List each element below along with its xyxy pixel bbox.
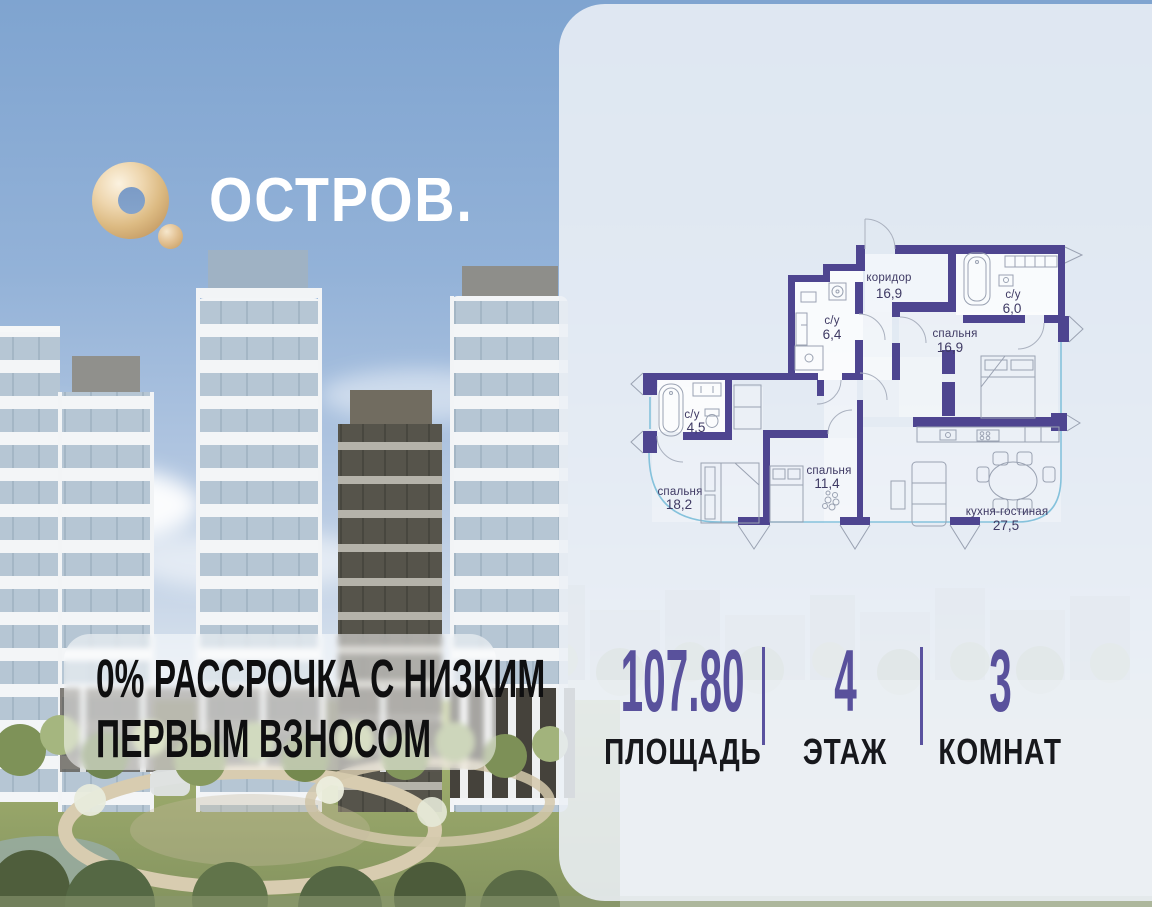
stat-area: 107.80 ПЛОЩАДЬ: [593, 645, 773, 773]
room-area: 6,0: [1003, 301, 1022, 316]
logo-dot-icon: [158, 224, 183, 249]
apartment-stats: 107.80 ПЛОЩАДЬ 4 ЭТАЖ 3 КОМНАТ: [0, 645, 1152, 765]
room-area: 6,4: [823, 327, 842, 342]
stat-floor-value: 4: [834, 645, 857, 717]
room-area: 27,5: [993, 518, 1019, 533]
brand-logo: ОСТРОВ.: [92, 160, 503, 240]
room-label: коридор: [866, 272, 911, 284]
room-area: 16,9: [937, 340, 963, 355]
room-area: 11,4: [814, 476, 840, 491]
stat-rooms-value: 3: [989, 645, 1012, 717]
room-label: с/у: [1005, 289, 1020, 301]
room-area: 4,5: [687, 420, 706, 435]
logo-ring-icon: [92, 162, 169, 239]
brand-name: ОСТРОВ.: [209, 165, 474, 236]
stat-rooms: 3 КОМНАТ: [910, 645, 1090, 773]
stat-area-value: 107.80: [621, 645, 745, 717]
room-area: 16,9: [876, 286, 902, 301]
room-area: 18,2: [666, 497, 692, 512]
stat-rooms-label: КОМНАТ: [938, 731, 1061, 773]
stat-floor: 4 ЭТАЖ: [755, 645, 935, 773]
room-label: спальня: [932, 328, 977, 340]
stat-area-label: ПЛОЩАДЬ: [604, 731, 761, 773]
room-label: с/у: [824, 315, 839, 327]
room-label: кухня-гостиная: [966, 506, 1049, 518]
stat-floor-label: ЭТАЖ: [803, 731, 887, 773]
floor-plan: коридор 16,9 с/у 6,4 с/у 6,0 спальня 16,…: [625, 205, 1105, 575]
ad-creative: ОСТРОВ.: [0, 0, 1152, 907]
